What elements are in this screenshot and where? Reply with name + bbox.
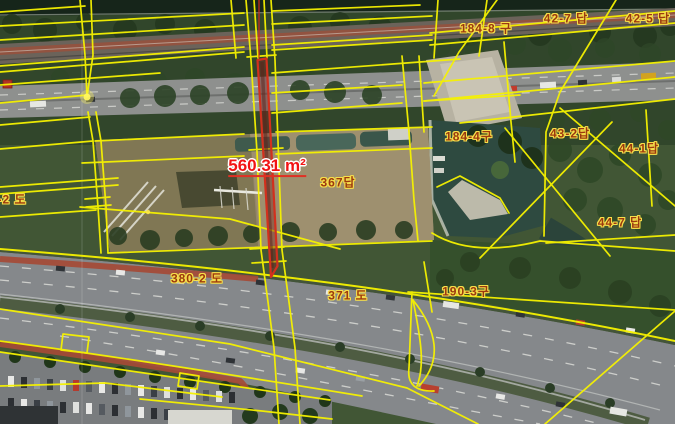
map-viewport[interactable]: 560.31 m² 184-8 구 42-7 답 42-5 답 184-4구 4… <box>0 0 675 424</box>
aerial-basemap <box>0 0 675 424</box>
